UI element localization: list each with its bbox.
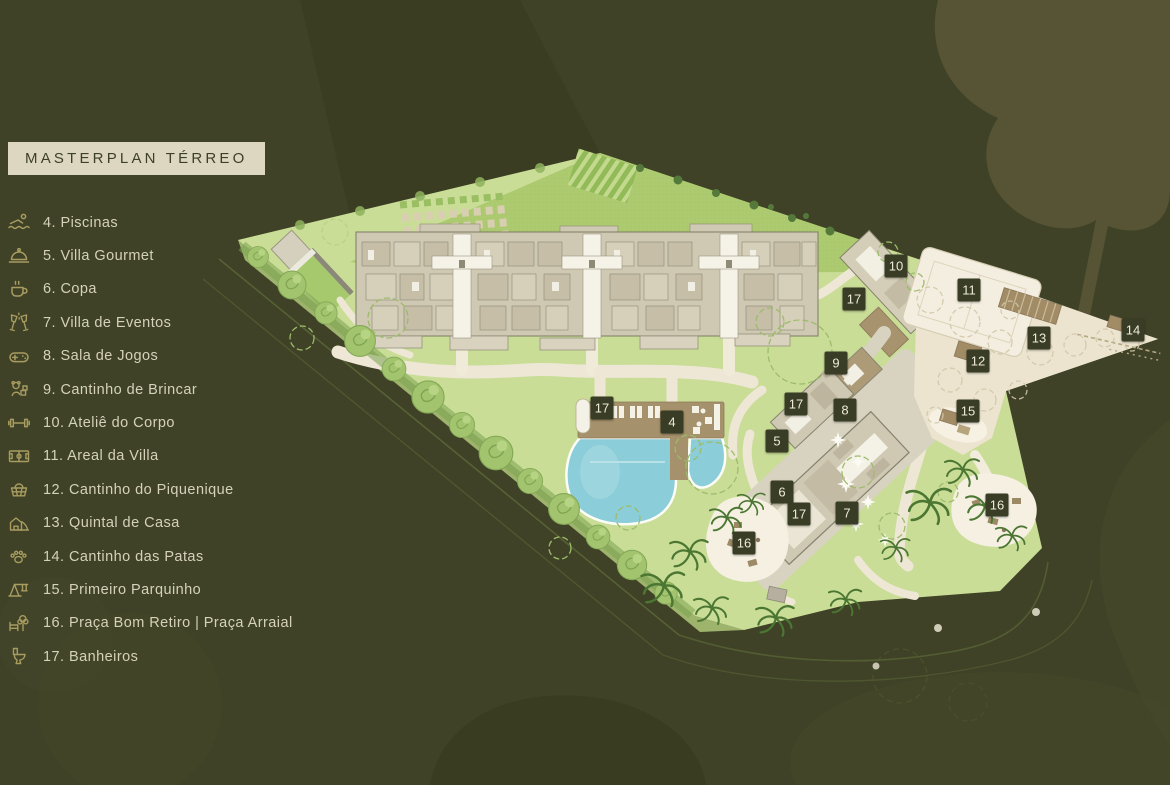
legend-item-label: 8. Sala de Jogos — [43, 348, 158, 364]
map-marker: 10 — [885, 255, 908, 278]
map-marker: 16 — [986, 494, 1009, 517]
legend-icon — [4, 477, 34, 502]
legend-item-label: 11. Areal da Villa — [43, 448, 159, 464]
legend-item: 13. Quintal de Casa — [4, 507, 293, 540]
map-marker: 15 — [957, 400, 980, 423]
sand-areal-zone — [901, 246, 1167, 455]
legend-item: 11. Areal da Villa — [4, 440, 293, 473]
legend-item: 9. Cantinho de Brincar — [4, 373, 293, 406]
legend-item: 10. Ateliê do Corpo — [4, 406, 293, 439]
legend-item: 5. Villa Gourmet — [4, 239, 293, 272]
legend-item: 16. Praça Bom Retiro | Praça Arraial — [4, 607, 293, 640]
legend-item-label: 14. Cantinho das Patas — [43, 549, 204, 565]
legend-item: 15. Primeiro Parquinho — [4, 573, 293, 606]
legend-item-label: 7. Villa de Eventos — [43, 315, 171, 331]
legend-icon — [4, 544, 34, 569]
map-marker: 5 — [766, 430, 789, 453]
map-marker: 7 — [836, 502, 859, 525]
legend-icon — [4, 344, 34, 369]
legend-item: 6. Copa — [4, 273, 293, 306]
map-marker: 17 — [785, 393, 808, 416]
page-title: MASTERPLAN TÉRREO — [25, 150, 248, 167]
map-marker: 9 — [825, 352, 848, 375]
legend-icon — [4, 577, 34, 602]
legend-icon — [4, 611, 34, 636]
legend-item: 12. Cantinho do Piquenique — [4, 473, 293, 506]
legend-item-label: 13. Quintal de Casa — [43, 515, 180, 531]
legend-icon — [4, 277, 34, 302]
legend-item: 4. Piscinas — [4, 206, 293, 239]
map-marker: 12 — [967, 350, 990, 373]
main-building — [356, 224, 818, 350]
legend-item-label: 9. Cantinho de Brincar — [43, 382, 197, 398]
map-marker: 13 — [1028, 327, 1051, 350]
legend-item: 14. Cantinho das Patas — [4, 540, 293, 573]
map-marker: 14 — [1122, 319, 1145, 342]
legend-item-label: 10. Ateliê do Corpo — [43, 415, 175, 431]
legend-item-label: 5. Villa Gourmet — [43, 248, 154, 264]
map-marker: 4 — [661, 411, 684, 434]
legend-icon — [4, 444, 34, 469]
legend-item-label: 4. Piscinas — [43, 215, 118, 231]
map-marker: 6 — [771, 481, 794, 504]
legend-item: 8. Sala de Jogos — [4, 340, 293, 373]
map-marker: 17 — [788, 503, 811, 526]
legend-icon — [4, 644, 34, 669]
legend-list: 4. Piscinas 5. Villa Gourmet 6. Copa 7. … — [4, 206, 293, 673]
legend-item-label: 15. Primeiro Parquinho — [43, 582, 201, 598]
legend-item-label: 17. Banheiros — [43, 649, 138, 665]
legend-icon — [4, 377, 34, 402]
legend-item: 7. Villa de Eventos — [4, 306, 293, 339]
map-marker: 11 — [958, 279, 981, 302]
legend-icon — [4, 210, 34, 235]
legend-icon — [4, 511, 34, 536]
map-marker: 17 — [843, 288, 866, 311]
legend-item-label: 6. Copa — [43, 281, 97, 297]
site-parcel — [238, 149, 1158, 632]
masterplan-screen: 174178561771616910171112131415 MASTERPLA… — [0, 0, 1170, 785]
masterplan-title-plaque: MASTERPLAN TÉRREO — [8, 142, 265, 175]
legend-item-label: 12. Cantinho do Piquenique — [43, 482, 234, 498]
legend-icon — [4, 244, 34, 269]
legend-icon — [4, 310, 34, 335]
map-marker: 17 — [591, 397, 614, 420]
map-marker: 16 — [733, 532, 756, 555]
legend-item-label: 16. Praça Bom Retiro | Praça Arraial — [43, 615, 293, 631]
legend-item: 17. Banheiros — [4, 640, 293, 673]
map-marker: 8 — [834, 399, 857, 422]
legend-icon — [4, 411, 34, 436]
